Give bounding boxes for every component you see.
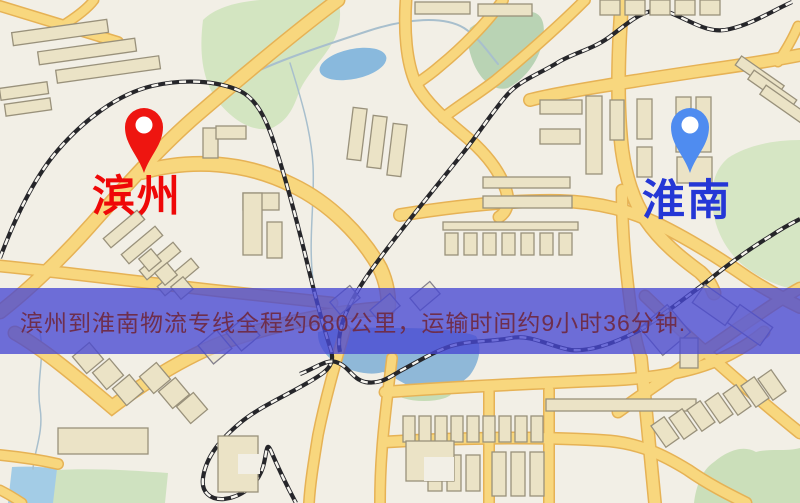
origin-label: 滨州: [92, 176, 182, 219]
origin-map-pin-icon[interactable]: [122, 105, 166, 177]
caption-band: 滨州到淮南物流专线全程约680公里，运输时间约9小时36分钟.: [0, 288, 800, 354]
route-caption-text: 滨州到淮南物流专线全程约680公里，运输时间约9小时36分钟.: [20, 304, 686, 338]
destination-label: 淮南: [642, 180, 732, 223]
map-canvas: [0, 0, 800, 503]
destination-map-pin-icon[interactable]: [668, 105, 712, 177]
static-map-image: 滨州到淮南物流专线全程约680公里，运输时间约9小时36分钟. 滨州 淮南: [0, 0, 800, 503]
